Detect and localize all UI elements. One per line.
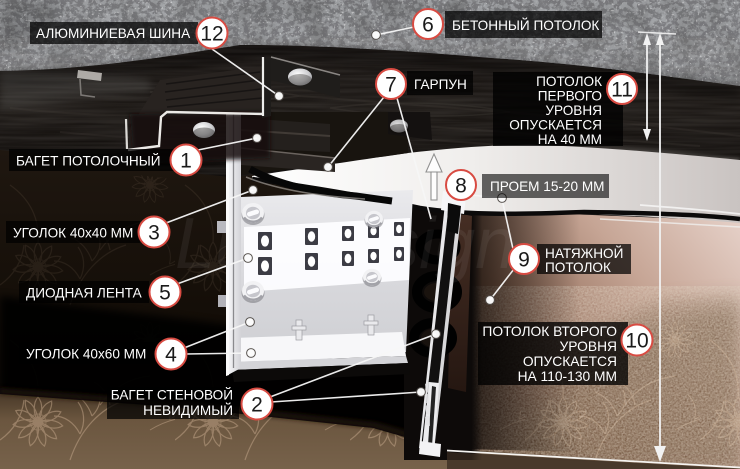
svg-text:ПОТОЛОК: ПОТОЛОК	[545, 260, 611, 275]
svg-text:ПОТОЛОК ВТОРОГО: ПОТОЛОК ВТОРОГО	[482, 324, 617, 339]
svg-text:11: 11	[611, 79, 633, 102]
svg-text:ПОТОЛОК: ПОТОЛОК	[536, 74, 602, 89]
svg-text:10: 10	[625, 330, 648, 353]
svg-text:12: 12	[200, 23, 223, 46]
svg-text:ПЕРВОГО: ПЕРВОГО	[538, 89, 602, 104]
svg-text:БЕТОННЫЙ ПОТОЛОК: БЕТОННЫЙ ПОТОЛОК	[452, 18, 599, 33]
svg-text:1: 1	[180, 150, 192, 173]
svg-text:АЛЮМИНИЕВАЯ ШИНА: АЛЮМИНИЕВАЯ ШИНА	[36, 26, 191, 41]
svg-text:7: 7	[385, 74, 397, 97]
svg-text:НА 40 ММ: НА 40 ММ	[538, 132, 602, 147]
svg-text:УРОВНЯ: УРОВНЯ	[559, 339, 617, 354]
svg-text:3: 3	[148, 222, 160, 245]
svg-text:9: 9	[518, 249, 530, 272]
svg-text:БАГЕТ ПОТОЛОЧНЫЙ: БАГЕТ ПОТОЛОЧНЫЙ	[16, 154, 161, 169]
svg-text:НА 110-130 ММ: НА 110-130 ММ	[518, 369, 617, 384]
svg-text:ОПУСКАЕТСЯ: ОПУСКАЕТСЯ	[523, 354, 617, 369]
svg-text:УГОЛОК 40х40 ММ: УГОЛОК 40х40 ММ	[13, 226, 133, 241]
svg-text:НЕВИДИМЫЙ: НЕВИДИМЫЙ	[143, 403, 233, 418]
svg-text:ДИОДНАЯ ЛЕНТА: ДИОДНАЯ ЛЕНТА	[26, 286, 143, 301]
svg-text:4: 4	[165, 344, 177, 367]
svg-text:УГОЛОК 40х60 ММ: УГОЛОК 40х60 ММ	[26, 347, 146, 362]
svg-text:6: 6	[422, 14, 434, 37]
svg-text:ГАРПУН: ГАРПУН	[414, 77, 467, 92]
svg-text:8: 8	[455, 175, 467, 198]
svg-text:2: 2	[251, 394, 263, 417]
svg-text:НАТЯЖНОЙ: НАТЯЖНОЙ	[545, 246, 623, 261]
svg-text:УРОВНЯ: УРОВНЯ	[545, 103, 602, 118]
svg-text:5: 5	[159, 282, 171, 305]
svg-text:БАГЕТ СТЕНОВОЙ: БАГЕТ СТЕНОВОЙ	[111, 388, 233, 403]
svg-text:ПРОЕМ 15-20 ММ: ПРОЕМ 15-20 ММ	[490, 179, 604, 194]
svg-text:ОПУСКАЕТСЯ: ОПУСКАЕТСЯ	[509, 118, 602, 133]
